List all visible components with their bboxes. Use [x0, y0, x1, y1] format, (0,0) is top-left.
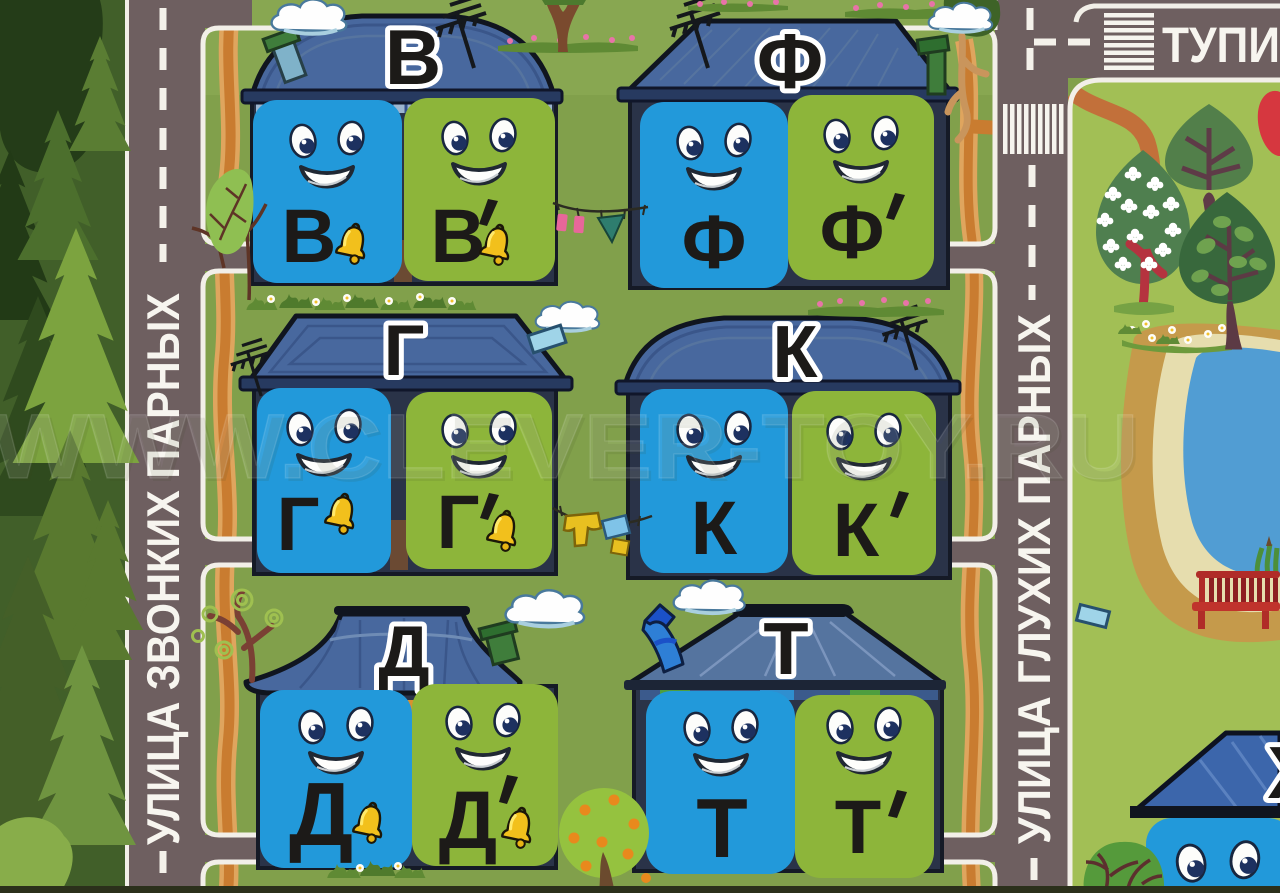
svg-text:Т: Т	[763, 607, 808, 690]
svg-text:В: В	[282, 194, 337, 279]
svg-text:Ф: Ф	[682, 200, 747, 285]
svg-text:УЛИЦА ЗВОНКИХ ПАРНЫХ: УЛИЦА ЗВОНКИХ ПАРНЫХ	[137, 293, 189, 845]
svg-text:WWW.CLEVER-TOY.RU: WWW.CLEVER-TOY.RU	[0, 396, 1139, 498]
svg-text:В: В	[431, 194, 486, 279]
svg-text:Д: Д	[378, 612, 429, 692]
svg-text:ТУПИ: ТУПИ	[1162, 17, 1280, 73]
svg-text:УЛИЦА ГЛУХИХ ПАРНЫХ: УЛИЦА ГЛУХИХ ПАРНЫХ	[1008, 314, 1060, 844]
svg-text:Д: Д	[439, 775, 497, 866]
svg-text:Ф: Ф	[820, 190, 885, 275]
svg-text:Ф: Ф	[757, 17, 824, 105]
svg-text:Х: Х	[1267, 731, 1280, 814]
svg-text:К: К	[772, 310, 818, 393]
svg-text:Т: Т	[696, 781, 747, 875]
svg-text:Г: Г	[384, 311, 425, 391]
svg-text:Т: Т	[835, 785, 881, 870]
svg-text:В: В	[385, 13, 441, 101]
svg-text:Д: Д	[289, 765, 353, 865]
